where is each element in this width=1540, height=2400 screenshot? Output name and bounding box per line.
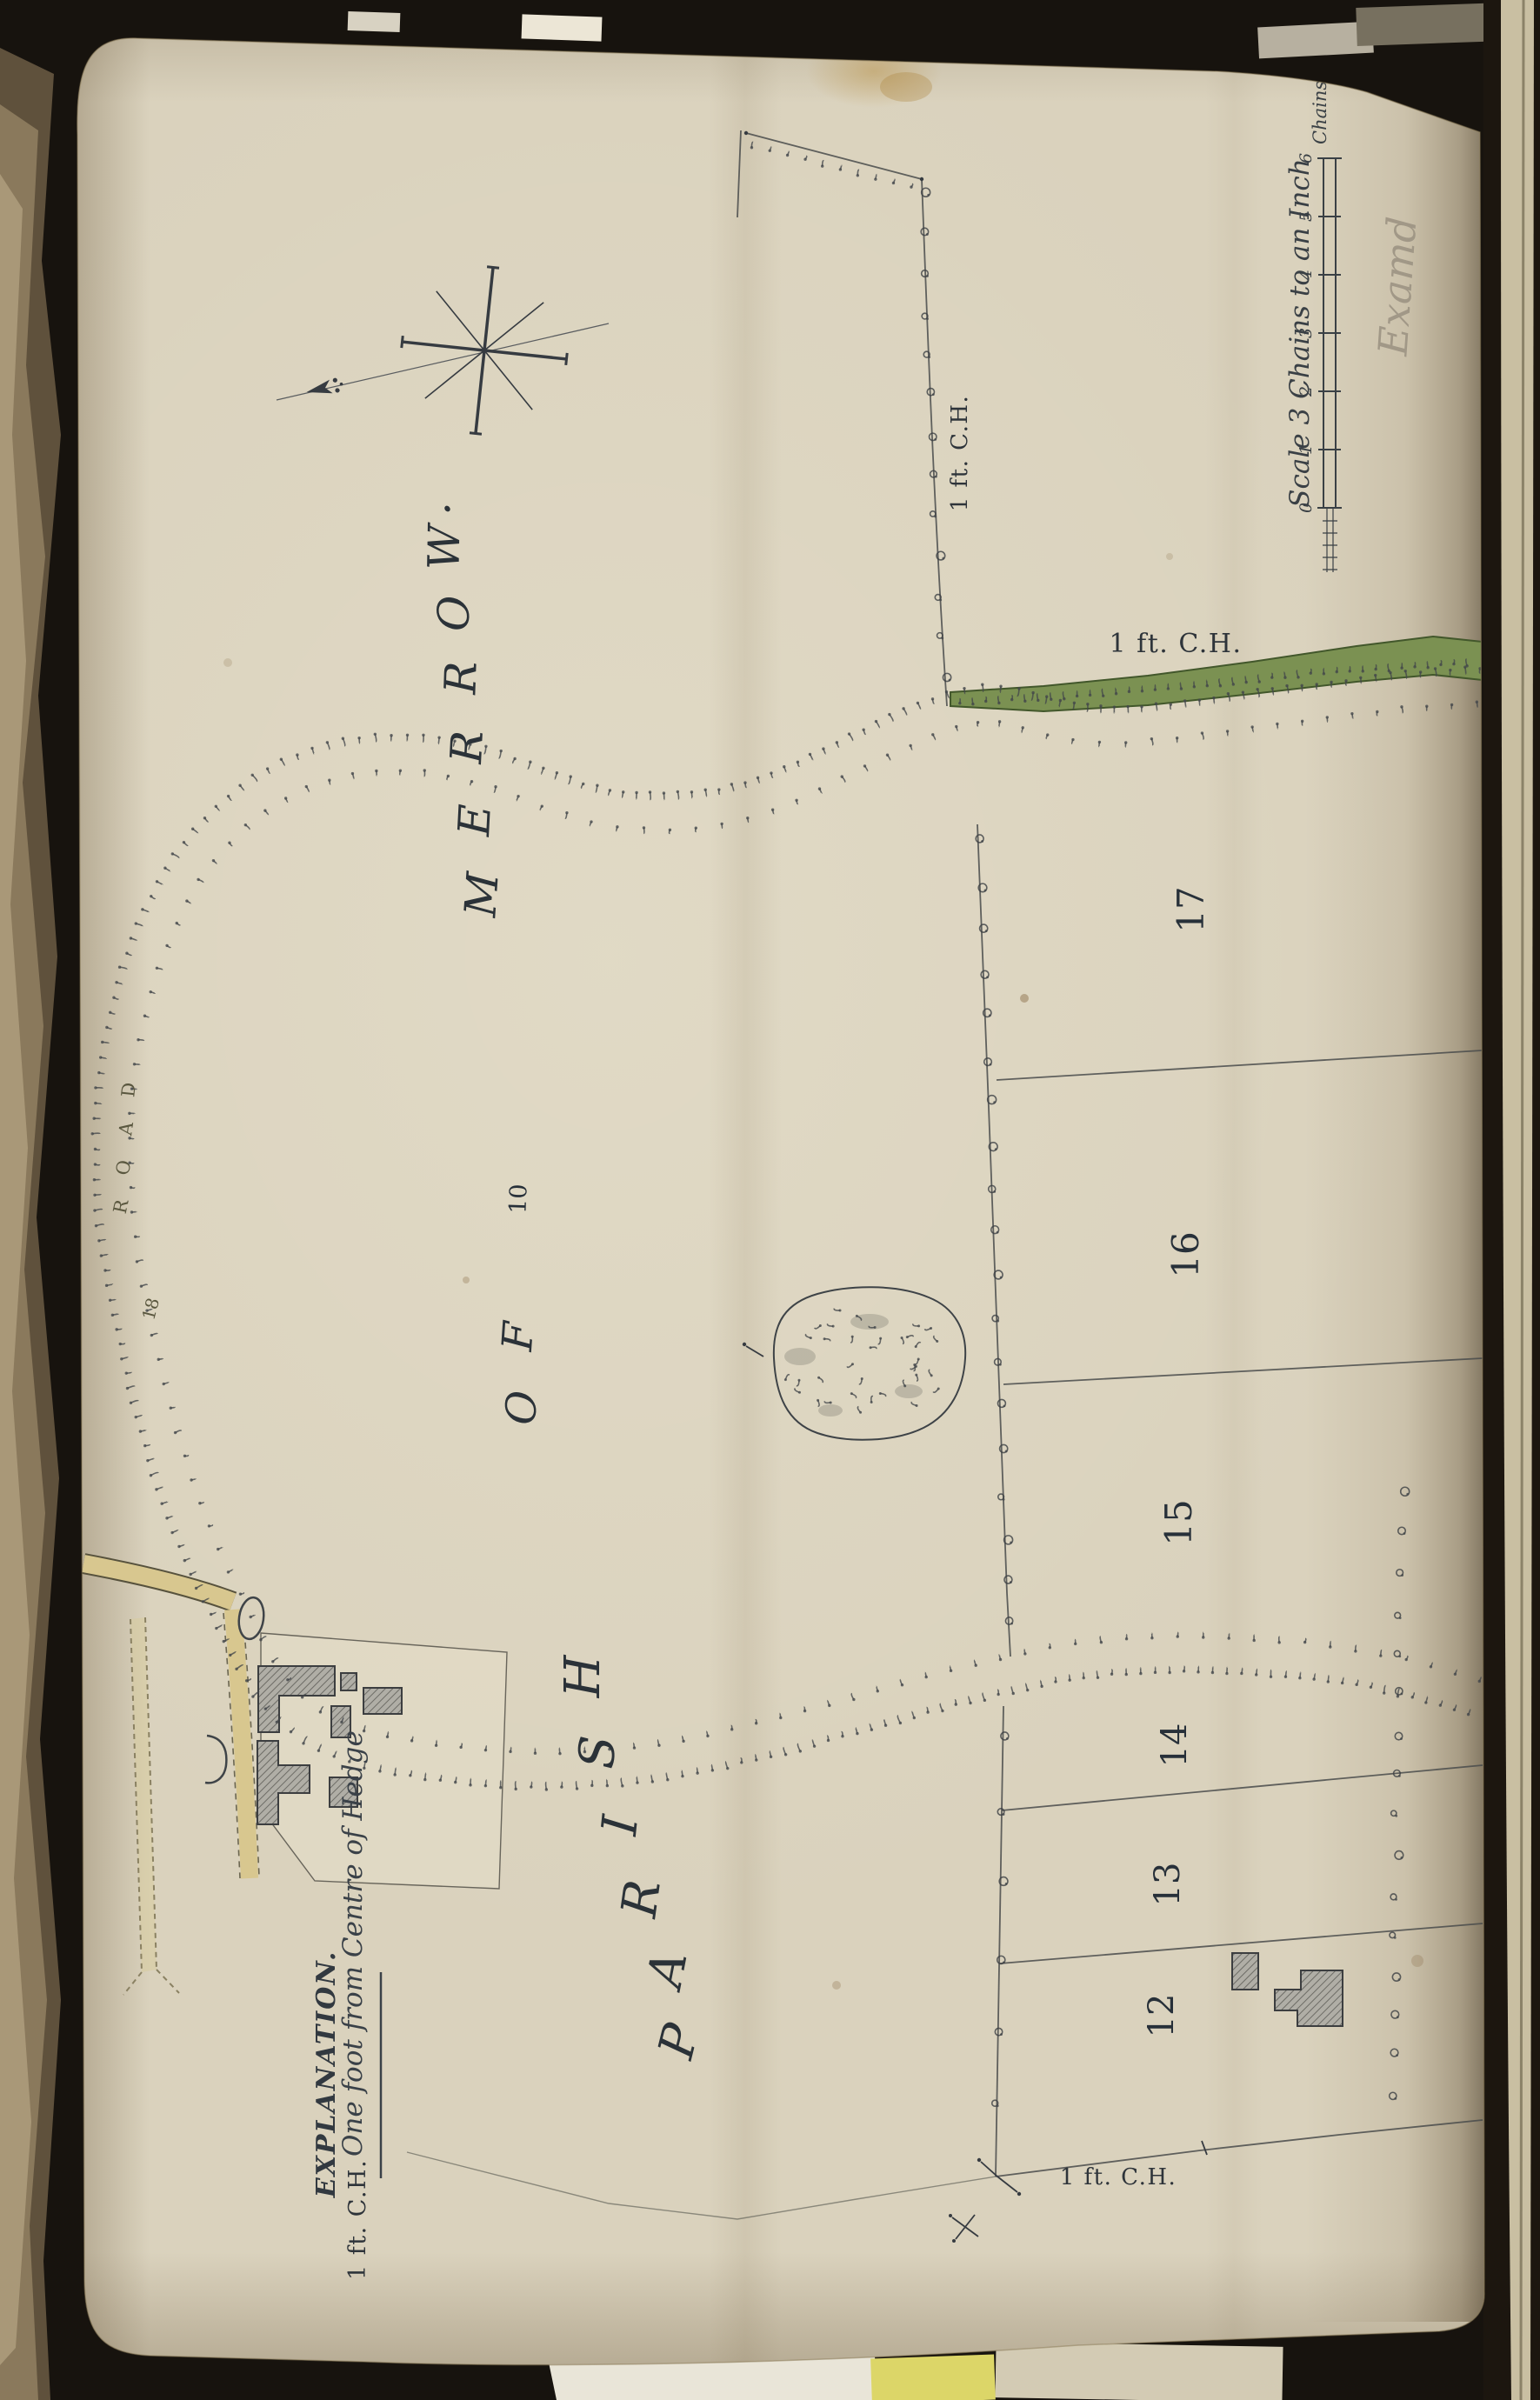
title-letter: O	[428, 595, 479, 632]
hedge-label-green-strip: 1 ft. C.H.	[1110, 629, 1243, 659]
plot-number-13: 13	[1148, 1863, 1188, 1907]
legend-abbr: 1 ft. C.H.	[344, 2159, 371, 2280]
plot-number-14: 14	[1155, 1723, 1195, 1768]
hedge-label-top: 1 ft. C.H.	[947, 395, 973, 512]
legend-meaning: One foot from Centre of Hedge	[337, 1730, 369, 2157]
title-letter: M	[455, 869, 509, 919]
building	[341, 1673, 357, 1690]
hedge-label-bottom: 1 ft. C.H.	[1060, 2164, 1177, 2190]
title-letter: O	[497, 1389, 548, 1426]
plot-number-15: 15	[1157, 1499, 1200, 1545]
title-letter: R	[610, 1877, 671, 1922]
photographed-map-page: P A R I S H O F M E R R O W . 10 17 16 1…	[0, 0, 1540, 2400]
building	[1232, 1953, 1258, 1990]
scale-tick-label: 4	[1297, 270, 1316, 281]
adjacent-page-right	[1483, 0, 1540, 2400]
plot-number-16: 16	[1164, 1231, 1207, 1277]
scale-tick-label: 6	[1297, 153, 1316, 163]
title-letter: R	[435, 661, 486, 697]
scale-tick-label: 0	[1297, 503, 1316, 513]
sticky-note	[870, 2355, 996, 2400]
title-letter: E	[449, 803, 501, 837]
title-letter: H	[555, 1654, 611, 1698]
title-letter: S	[569, 1734, 627, 1770]
title-letter: R	[441, 730, 493, 766]
road-name-letter: D	[117, 1082, 140, 1098]
map-photo: P A R I S H O F M E R R O W . 10 17 16 1…	[0, 0, 1540, 2400]
title-letter: F	[493, 1319, 543, 1354]
examined-note: Examd	[1369, 215, 1425, 357]
plot-number-12: 12	[1142, 1994, 1182, 2038]
scale-tick-label: 5	[1297, 211, 1316, 222]
scale-tick-label: 3	[1297, 328, 1316, 338]
building	[363, 1688, 402, 1714]
plot-number-10: 10	[504, 1183, 532, 1214]
title-letter: .	[410, 501, 460, 516]
scale-tick-label: 2	[1297, 386, 1316, 397]
plot-number-17: 17	[1170, 886, 1212, 932]
scale-tick-label: 1	[1297, 444, 1316, 455]
title-letter: W	[419, 522, 470, 570]
scale-unit: Chains	[1310, 81, 1330, 144]
